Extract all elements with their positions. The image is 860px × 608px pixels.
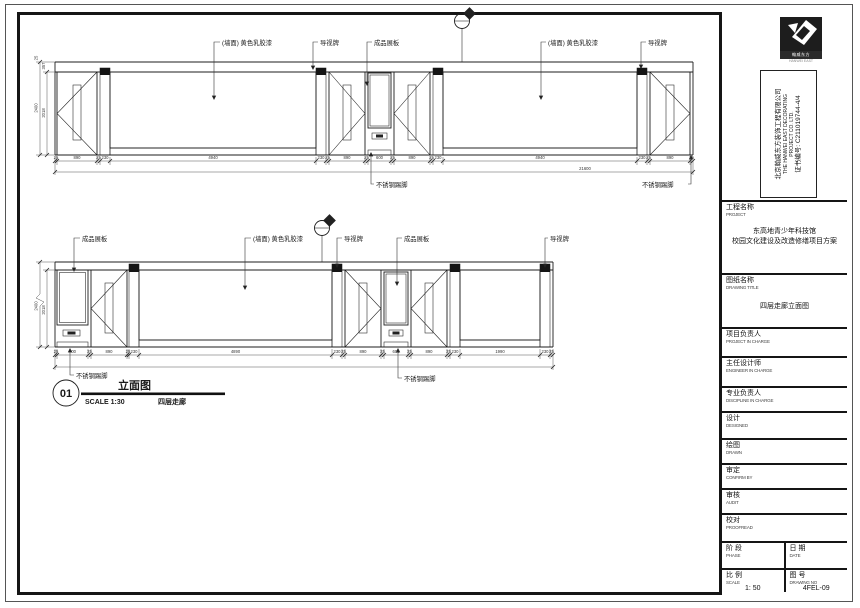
bottom-elevation-drawing: 成品展板 (墙面) 黄色乳胶漆 导视牌 成品展板 导视牌 不锈钢踢脚 不锈钢踢脚 xyxy=(34,214,570,406)
phase-date-row: 阶 段 PHASE 日 期 DATE xyxy=(722,541,847,568)
label-wall-paint: (墙面) 黄色乳胶漆 xyxy=(548,38,599,47)
label-skirting: 不锈钢踢脚 xyxy=(404,374,435,383)
dim-label: 357 xyxy=(41,62,46,70)
field-confirm-by: 审定 CONFIRM BY xyxy=(722,463,847,488)
label-display-board: 成品展板 xyxy=(374,38,400,47)
dim-label: 2018 xyxy=(41,108,46,118)
dim-label: 25 xyxy=(341,349,346,354)
title-block: 翰威东方 HANWEI EAST 北京翰威东方装饰工程有限公司 THE HANW… xyxy=(719,12,847,595)
project-label-en: PROJECT xyxy=(726,212,843,217)
top-elevation-drawing: (墙面) 黄色乳胶漆 导视牌 成品展板 (墙面) 黄色乳胶漆 导视牌 不锈钢踢脚… xyxy=(34,7,696,189)
project-name-line1: 东高地青少年科技馆 xyxy=(726,226,843,236)
project-name-section: 工程名称 PROJECT 东高地青少年科技馆 校园文化建设及改造修缮项目方案 xyxy=(722,200,847,273)
company-cert-no: 证书编号: C211019744-4/4 xyxy=(795,73,803,195)
label-sign-board: 导视牌 xyxy=(344,234,364,243)
dim-label: 230 xyxy=(102,155,110,160)
dim-label: 230 xyxy=(542,349,550,354)
elevation-marker-icon xyxy=(315,214,336,262)
drawing-title-section: 图纸名称 DRAWING TITLE 四层走廊立面图 xyxy=(722,273,847,327)
company-certificate-box: 北京翰威东方装饰工程有限公司 THE HANWEI EAST DECORATIN… xyxy=(760,70,817,198)
door xyxy=(91,270,127,347)
drawing-title-label-cn: 图纸名称 xyxy=(726,277,843,285)
phase-label-cn: 阶 段 xyxy=(726,545,780,553)
height-dimensions: 2400 2018 25 357 xyxy=(34,55,56,157)
sign-column xyxy=(129,264,550,347)
date-label-en: DATE xyxy=(790,553,844,558)
door xyxy=(411,270,447,347)
drawing-no-value: 4FEL-09 xyxy=(790,585,844,592)
dim-label: 25 xyxy=(54,155,59,160)
dim-label: 25 xyxy=(380,349,385,354)
company-name-en1: THE HANWEI EAST DECORATING xyxy=(783,73,789,195)
dim-label: 890 xyxy=(426,349,434,354)
dim-label: 230 xyxy=(639,155,647,160)
label-display-board: 成品展板 xyxy=(82,234,108,243)
dim-label: 230 xyxy=(452,349,460,354)
dim-label: 4890 xyxy=(231,349,241,354)
dim-label: 2400 xyxy=(34,103,39,113)
view-number: 01 xyxy=(60,388,72,400)
annotation-labels: (墙面) 黄色乳胶漆 导视牌 成品展板 (墙面) 黄色乳胶漆 导视牌 不锈钢踢脚… xyxy=(212,38,693,189)
dim-label: 25 xyxy=(34,55,39,60)
elevation-marker-icon xyxy=(455,7,476,62)
label-display-board: 成品展板 xyxy=(404,234,430,243)
field-engineer-in-charge: 主任设计师 ENGINEER IN CHARGE xyxy=(722,356,847,386)
dim-label: 2018 xyxy=(41,305,46,315)
view-location: 四层走廊 xyxy=(158,397,186,406)
dimension-row: 25 700 25 890 25 230 4890 230 25 890 25 … xyxy=(53,349,555,370)
drawing-sheet: (墙面) 黄色乳胶漆 导视牌 成品展板 (墙面) 黄色乳胶漆 导视牌 不锈钢踢脚… xyxy=(0,0,860,608)
dim-label: 890 xyxy=(360,349,368,354)
field-discipline-in-charge: 专业负责人 DISCIPLINE IN CHARGE xyxy=(722,386,847,411)
dim-label: 25 xyxy=(54,349,59,354)
dim-label: 230 xyxy=(435,155,443,160)
project-name-line2: 校园文化建设及改造修缮项目方案 xyxy=(726,236,843,246)
drawing-title-value: 四层走廊立面图 xyxy=(726,301,843,311)
logo-subtitle: HANWEI EAST xyxy=(780,59,822,63)
dim-label: 25 xyxy=(325,155,330,160)
scale-number-row: 比 例 SCALE 1: 50 图 号 DRAWING NO 4FEL-09 xyxy=(722,568,847,592)
display-board xyxy=(57,270,88,347)
drawing-no-label-cn: 图 号 xyxy=(790,572,844,580)
dim-label: 4940 xyxy=(208,155,218,160)
dim-label: 25 xyxy=(390,155,395,160)
label-skirting: 不锈钢踢脚 xyxy=(376,180,407,189)
company-name-en2: PROJECT CO. LTD. xyxy=(789,73,795,195)
dim-label: 25 xyxy=(87,349,92,354)
label-skirting: 不锈钢踢脚 xyxy=(642,180,673,189)
view-title-text: 立面图 xyxy=(118,378,151,392)
dim-label: 890 xyxy=(667,155,675,160)
dim-label: 890 xyxy=(106,349,114,354)
door xyxy=(57,72,97,155)
door xyxy=(345,270,381,347)
scale-value: 1: 50 xyxy=(726,585,780,592)
company-logo-icon xyxy=(780,17,822,51)
sign-column xyxy=(100,68,647,155)
dim-label: 25 xyxy=(689,155,694,160)
label-skirting: 不锈钢踢脚 xyxy=(76,371,107,380)
date-label-cn: 日 期 xyxy=(790,545,844,553)
label-sign-board: 导视牌 xyxy=(550,234,570,243)
annotation-labels: 成品展板 (墙面) 黄色乳胶漆 导视牌 成品展板 导视牌 不锈钢踢脚 不锈钢踢脚 xyxy=(68,234,570,383)
view-title: 01 立面图 SCALE 1:30 四层走廊 xyxy=(53,378,225,406)
dim-label: 890 xyxy=(409,155,417,160)
dim-total: 21600 xyxy=(579,166,591,171)
field-audit: 审核 AUDIT xyxy=(722,488,847,513)
dim-label: 25 xyxy=(364,155,369,160)
label-sign-board: 导视牌 xyxy=(648,38,668,47)
dim-label: 4940 xyxy=(535,155,545,160)
door xyxy=(394,72,430,155)
label-wall-paint: (墙面) 黄色乳胶漆 xyxy=(222,38,273,47)
label-sign-board: 导视牌 xyxy=(320,38,340,47)
company-name-cn: 北京翰威东方装饰工程有限公司 xyxy=(775,73,783,195)
tiled-wall xyxy=(139,270,540,347)
dim-label: 230 xyxy=(318,155,326,160)
view-scale: SCALE 1:30 xyxy=(85,399,125,406)
dim-label: 25 xyxy=(646,155,651,160)
dimension-row: 25 890 25 230 4940 230 25 890 25 600 25 … xyxy=(53,155,695,175)
dim-label: 1990 xyxy=(495,349,505,354)
dim-label: 230 xyxy=(131,349,139,354)
dim-label: 25 xyxy=(549,349,554,354)
drawing-title-label-en: DRAWING TITLE xyxy=(726,285,843,290)
dim-label: 600 xyxy=(376,155,384,160)
dim-label: 890 xyxy=(344,155,352,160)
dim-label: 700 xyxy=(69,349,77,354)
door xyxy=(650,72,690,155)
project-label-cn: 工程名称 xyxy=(726,204,843,212)
field-proofread: 校对 PROOFREAD xyxy=(722,513,847,541)
field-drawn: 绘图 DRAWN xyxy=(722,438,847,463)
display-board xyxy=(368,73,391,155)
door xyxy=(329,72,365,155)
dim-label: 2400 xyxy=(34,301,39,311)
tiled-wall xyxy=(110,72,637,155)
scale-label-cn: 比 例 xyxy=(726,572,780,580)
dim-label: 25 xyxy=(407,349,412,354)
dim-label: 890 xyxy=(74,155,82,160)
dim-label: 600 xyxy=(393,349,401,354)
field-project-in-charge: 项目负责人 PROJECT IN CHARGE xyxy=(722,327,847,356)
field-designed: 设计 DESIGNED xyxy=(722,411,847,438)
height-dimensions: 2400 2018 xyxy=(34,260,56,349)
label-wall-paint: (墙面) 黄色乳胶漆 xyxy=(253,234,304,243)
dim-label: 230 xyxy=(334,349,342,354)
logo-caption: 翰威东方 xyxy=(780,51,822,59)
phase-label-en: PHASE xyxy=(726,553,780,558)
